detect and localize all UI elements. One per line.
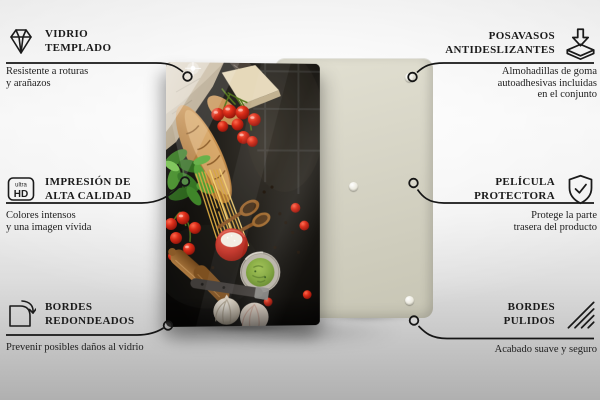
feature-head: PELÍCULA PROTECTORA bbox=[427, 172, 597, 206]
feature-title: IMPRESIÓN DE ALTA CALIDAD bbox=[45, 175, 131, 203]
shield-check-icon bbox=[564, 173, 597, 206]
feature-head: ultra HD IMPRESIÓN DE ALTA CALIDAD bbox=[6, 172, 176, 206]
feature-description: Almohadillas de goma autoadhesivas inclu… bbox=[427, 66, 597, 101]
hd-label: HD bbox=[14, 189, 28, 200]
anti-slip-pad bbox=[405, 296, 414, 305]
feature-title: BORDES PULIDOS bbox=[504, 300, 555, 328]
product-front-glass-panel bbox=[166, 62, 320, 327]
diamond-icon bbox=[6, 26, 36, 56]
feature-head: BORDES REDONDEADOS bbox=[6, 297, 176, 331]
anti-slip-pad bbox=[405, 73, 414, 82]
feature-description: Colores intensos y una imagen vívida bbox=[6, 210, 176, 233]
feature-callout-impresion-alta-calidad: ultra HD IMPRESIÓN DE ALTA CALIDAD Color… bbox=[6, 172, 176, 233]
rounded-corner-icon bbox=[6, 299, 36, 329]
feature-title: BORDES REDONDEADOS bbox=[45, 300, 134, 328]
feature-head: BORDES PULIDOS bbox=[427, 297, 597, 331]
feature-head: VIDRIO TEMPLADO bbox=[6, 24, 176, 58]
feature-callout-pelicula-protectora: PELÍCULA PROTECTORA Protege la parte tra… bbox=[427, 172, 597, 233]
feature-title: VIDRIO TEMPLADO bbox=[45, 27, 111, 55]
ultra-label: ultra bbox=[15, 183, 27, 189]
feature-callout-bordes-pulidos: BORDES PULIDOS Acabado suave y seguro bbox=[427, 297, 597, 356]
product-infographic: VIDRIO TEMPLADO Resistente a roturas y a… bbox=[0, 0, 600, 400]
feature-head: POSAVASOS ANTIDESLIZANTES bbox=[427, 26, 597, 60]
feature-description: Prevenir posibles daños al vidrio bbox=[6, 342, 176, 354]
polished-edge-icon bbox=[564, 298, 597, 331]
feature-description: Resistente a roturas y arañazos bbox=[6, 66, 176, 89]
feature-description: Acabado suave y seguro bbox=[427, 344, 597, 356]
ultra-hd-icon: ultra HD bbox=[6, 174, 36, 204]
feature-title: POSAVASOS ANTIDESLIZANTES bbox=[445, 29, 555, 57]
coaster-arrow-icon bbox=[564, 27, 597, 60]
feature-callout-vidrio-templado: VIDRIO TEMPLADO Resistente a roturas y a… bbox=[6, 24, 176, 89]
feature-callout-posavasos-antideslizantes: POSAVASOS ANTIDESLIZANTES Almohadillas d… bbox=[427, 26, 597, 101]
anti-slip-pad bbox=[349, 182, 358, 191]
feature-description: Protege la parte trasera del producto bbox=[427, 210, 597, 233]
food-photo bbox=[166, 62, 320, 327]
feature-callout-bordes-redondeados: BORDES REDONDEADOS Prevenir posibles dañ… bbox=[6, 297, 176, 354]
feature-title: PELÍCULA PROTECTORA bbox=[474, 175, 555, 203]
